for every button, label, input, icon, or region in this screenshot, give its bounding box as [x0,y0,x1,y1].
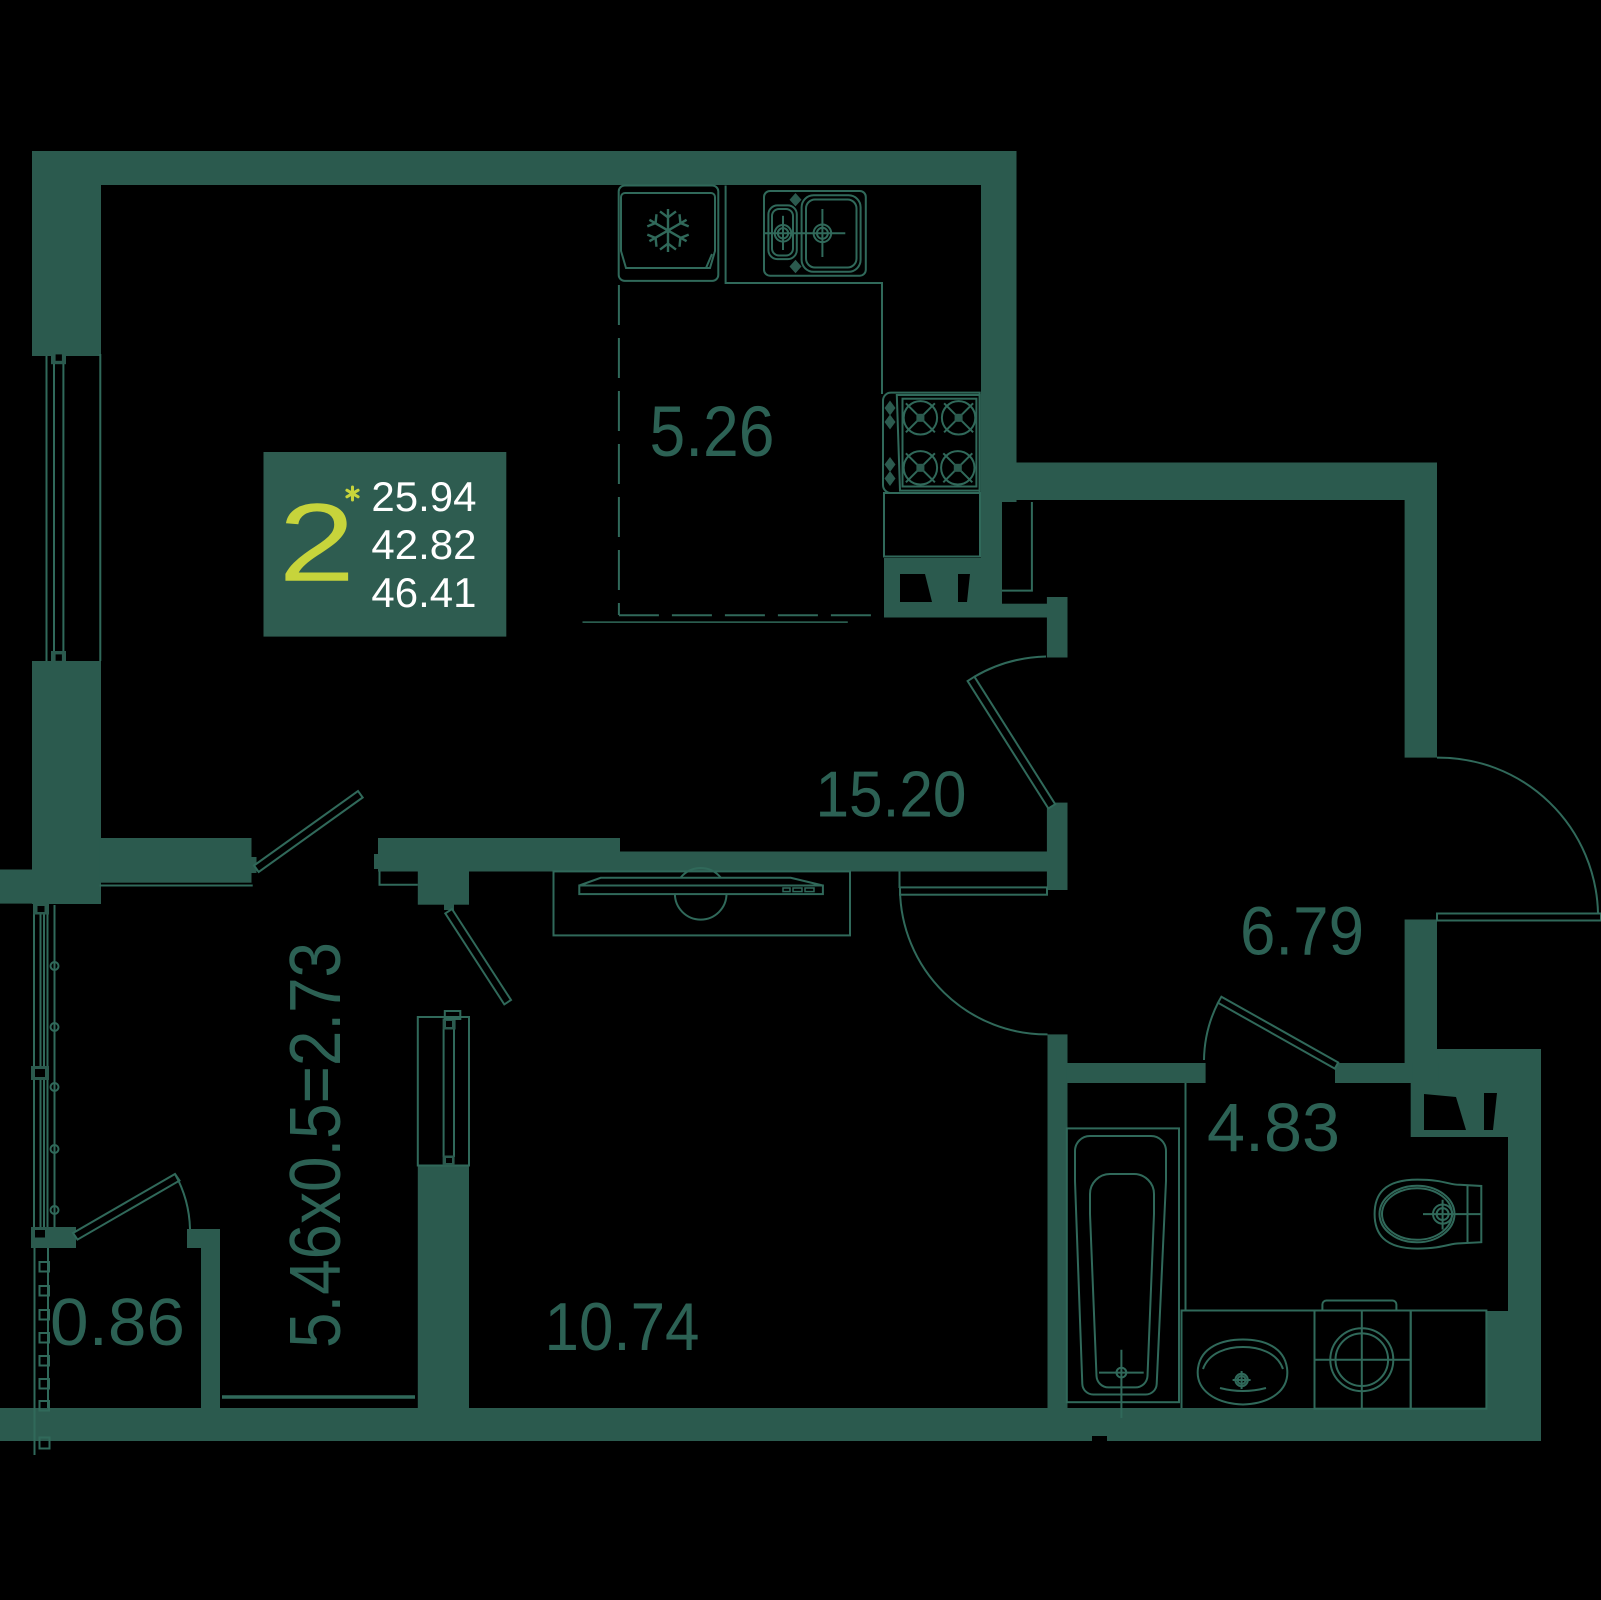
svg-text:5.46x0.5=2.73: 5.46x0.5=2.73 [276,942,356,1348]
svg-text:46.41: 46.41 [371,569,476,616]
svg-text:6.79: 6.79 [1240,893,1364,970]
svg-text:4.83: 4.83 [1207,1089,1340,1166]
svg-text:10.74: 10.74 [545,1289,700,1365]
svg-text:25.94: 25.94 [371,473,476,520]
svg-text:0.86: 0.86 [50,1285,185,1360]
svg-text:5.26: 5.26 [650,393,775,472]
svg-text:2: 2 [279,481,356,604]
svg-text:15.20: 15.20 [816,758,967,831]
svg-text:42.82: 42.82 [371,521,476,568]
